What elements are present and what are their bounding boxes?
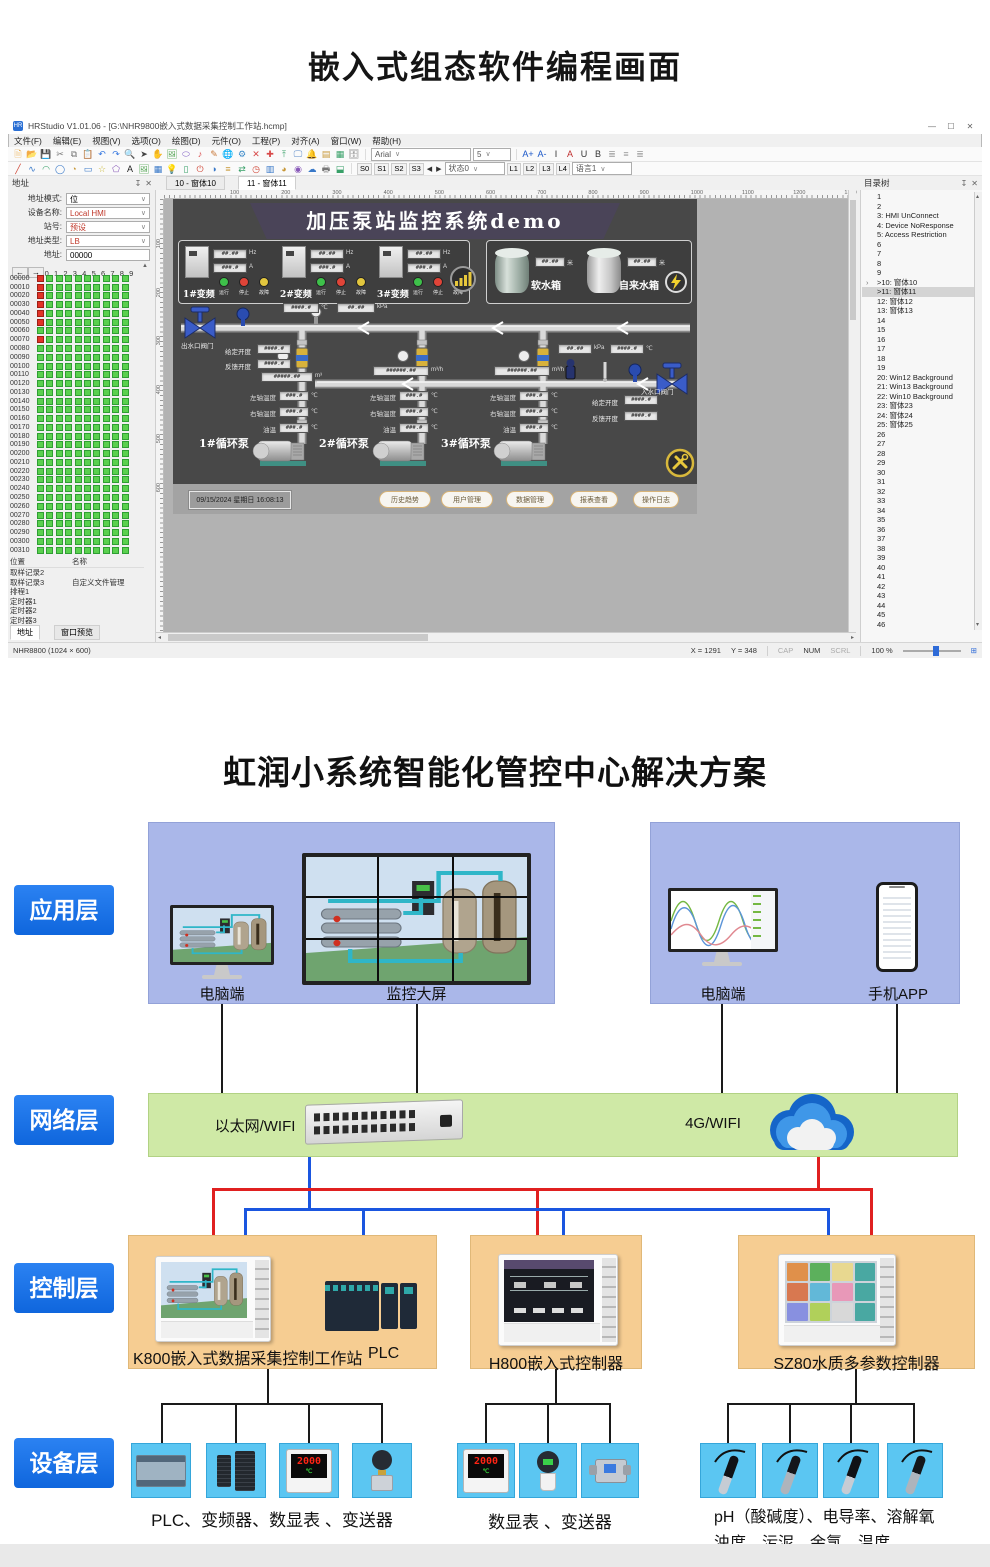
- bit-cell[interactable]: [65, 503, 72, 510]
- bit-cell[interactable]: [46, 354, 53, 361]
- picture-icon[interactable]: 🖼: [138, 163, 150, 175]
- image-icon[interactable]: 🖼: [166, 148, 178, 160]
- bit-cell[interactable]: [93, 520, 100, 527]
- bit-cell[interactable]: [112, 468, 119, 475]
- temp-display-top[interactable]: ####.#: [283, 303, 319, 313]
- bit-cell[interactable]: [122, 441, 129, 448]
- bit-cell[interactable]: [65, 310, 72, 317]
- bit-cell[interactable]: [56, 468, 63, 475]
- bit-cell[interactable]: [112, 354, 119, 361]
- printer-icon[interactable]: 🖶: [320, 163, 332, 175]
- bit-cell[interactable]: [56, 389, 63, 396]
- hmi-design-canvas[interactable]: 加压泵站监控系统demo 1#变频##.##Hz###.#A运行停止故障2#变频…: [173, 199, 697, 484]
- tree-item[interactable]: 26: [862, 430, 974, 440]
- bit-cell[interactable]: [56, 319, 63, 326]
- bit-cell[interactable]: [122, 503, 129, 510]
- bit-cell[interactable]: [37, 441, 44, 448]
- bit-cell[interactable]: [56, 503, 63, 510]
- bit-cell[interactable]: [37, 450, 44, 457]
- bit-cell[interactable]: [112, 520, 119, 527]
- bit-cell[interactable]: [65, 485, 72, 492]
- bit-cell[interactable]: [112, 415, 119, 422]
- state-button-S2[interactable]: S2: [391, 163, 406, 175]
- cut-icon[interactable]: ✂: [54, 148, 66, 160]
- align-center-icon[interactable]: ≡: [620, 148, 632, 160]
- bit-cell[interactable]: [75, 494, 82, 501]
- bit-cell[interactable]: [46, 319, 53, 326]
- bit-cell[interactable]: [112, 345, 119, 352]
- bit-cell[interactable]: [103, 433, 110, 440]
- bit-cell[interactable]: [75, 371, 82, 378]
- value-display[interactable]: ###.#: [399, 391, 429, 401]
- bit-cell[interactable]: [93, 441, 100, 448]
- bit-cell[interactable]: [122, 494, 129, 501]
- tree-item[interactable]: 23: 窗体23: [862, 401, 974, 411]
- menu-item-6[interactable]: 元件(O): [212, 135, 241, 147]
- bit-cell[interactable]: [75, 547, 82, 554]
- bit-cell[interactable]: [112, 284, 119, 291]
- bit-cell[interactable]: [84, 441, 91, 448]
- bit-cell[interactable]: [46, 292, 53, 299]
- tree-item[interactable]: 32: [862, 487, 974, 497]
- bit-cell[interactable]: [75, 345, 82, 352]
- tree-item[interactable]: 27: [862, 439, 974, 449]
- bit-cell[interactable]: [75, 292, 82, 299]
- close-icon[interactable]: ✕: [145, 179, 152, 188]
- bit-cell[interactable]: [103, 371, 110, 378]
- bit-cell[interactable]: [103, 292, 110, 299]
- bit-cell[interactable]: [37, 529, 44, 536]
- bit-cell[interactable]: [93, 398, 100, 405]
- paste-icon[interactable]: 📋: [82, 148, 94, 160]
- tab-window11[interactable]: 11 - 窗体11: [238, 176, 296, 190]
- component-icon[interactable]: ⬓: [334, 163, 346, 175]
- inlet-set-display[interactable]: ####.#: [624, 395, 658, 405]
- outlet-set-display[interactable]: ####.#: [257, 344, 291, 354]
- bold-button[interactable]: B: [592, 148, 604, 160]
- tree-item[interactable]: 30: [862, 468, 974, 478]
- bit-cell[interactable]: [46, 363, 53, 370]
- bit-cell[interactable]: [46, 476, 53, 483]
- bit-cell[interactable]: [103, 398, 110, 405]
- state-next-icon[interactable]: ▶: [435, 165, 442, 173]
- bit-cell[interactable]: [84, 380, 91, 387]
- bit-cell[interactable]: [37, 468, 44, 475]
- canvas-hscrollbar[interactable]: ◂▸: [156, 632, 856, 642]
- tree-item[interactable]: 36: [862, 525, 974, 535]
- bit-cell[interactable]: [112, 301, 119, 308]
- bit-cell[interactable]: [103, 380, 110, 387]
- bit-cell[interactable]: [37, 512, 44, 519]
- bit-cell[interactable]: [93, 494, 100, 501]
- tree-item[interactable]: 15: [862, 325, 974, 335]
- state-button-S0[interactable]: S0: [357, 163, 372, 175]
- plus-icon[interactable]: ✚: [264, 148, 276, 160]
- bit-cell[interactable]: [65, 459, 72, 466]
- lang-button-L3[interactable]: L3: [539, 163, 553, 175]
- menu-item-2[interactable]: 编辑(E): [53, 135, 81, 147]
- bit-cell[interactable]: [122, 284, 129, 291]
- bit-cell[interactable]: [122, 415, 129, 422]
- bit-cell[interactable]: [84, 301, 91, 308]
- bit-cell[interactable]: [122, 529, 129, 536]
- bit-cell[interactable]: [56, 371, 63, 378]
- bit-cell[interactable]: [65, 398, 72, 405]
- bit-cell[interactable]: [56, 398, 63, 405]
- italic-button[interactable]: I: [550, 148, 562, 160]
- value-display[interactable]: ###.#: [279, 391, 309, 401]
- bit-cell[interactable]: [56, 354, 63, 361]
- bit-cell[interactable]: [93, 319, 100, 326]
- bit-cell[interactable]: [75, 406, 82, 413]
- hmi-button-2[interactable]: 用户管理: [441, 491, 493, 508]
- open-folder-icon[interactable]: 📂: [26, 148, 38, 160]
- bit-cell[interactable]: [56, 494, 63, 501]
- lang-button-L4[interactable]: L4: [556, 163, 570, 175]
- bit-cell[interactable]: [37, 485, 44, 492]
- bit-cell[interactable]: [84, 538, 91, 545]
- bit-cell[interactable]: [37, 538, 44, 545]
- bit-cell[interactable]: [93, 292, 100, 299]
- bit-cell[interactable]: [93, 336, 100, 343]
- bit-cell[interactable]: [46, 459, 53, 466]
- bit-cell[interactable]: [103, 389, 110, 396]
- bit-cell[interactable]: [93, 380, 100, 387]
- bit-cell[interactable]: [103, 310, 110, 317]
- bit-cell[interactable]: [46, 529, 53, 536]
- bit-cell[interactable]: [103, 406, 110, 413]
- bit-cell[interactable]: [75, 284, 82, 291]
- bit-cell[interactable]: [46, 494, 53, 501]
- close-button[interactable]: ✕: [963, 122, 977, 131]
- tree-item[interactable]: 17: [862, 344, 974, 354]
- bit-cell[interactable]: [122, 468, 129, 475]
- bit-cell[interactable]: [112, 380, 119, 387]
- bit-cell[interactable]: [122, 459, 129, 466]
- bit-cell[interactable]: [65, 406, 72, 413]
- bit-cell[interactable]: [84, 310, 91, 317]
- bit-cell[interactable]: [75, 529, 82, 536]
- maximize-button[interactable]: ☐: [944, 122, 958, 131]
- bit-cell[interactable]: [56, 459, 63, 466]
- bit-cell[interactable]: [84, 485, 91, 492]
- menu-item-4[interactable]: 选项(O): [132, 135, 161, 147]
- bit-cell[interactable]: [84, 363, 91, 370]
- tree-item[interactable]: 4: Device NoResponse: [862, 221, 974, 231]
- bit-cell[interactable]: [56, 275, 63, 282]
- tree-item[interactable]: 6: [862, 240, 974, 250]
- bit-cell[interactable]: [84, 529, 91, 536]
- bit-cell[interactable]: [93, 512, 100, 519]
- tree-item[interactable]: 40: [862, 563, 974, 573]
- state-button-S3[interactable]: S3: [409, 163, 424, 175]
- bit-cell[interactable]: [103, 503, 110, 510]
- bit-cell[interactable]: [56, 520, 63, 527]
- bit-cell[interactable]: [65, 363, 72, 370]
- bit-cell[interactable]: [65, 354, 72, 361]
- bit-cell[interactable]: [37, 459, 44, 466]
- bit-cell[interactable]: [112, 485, 119, 492]
- bit-cell[interactable]: [75, 415, 82, 422]
- tree-item[interactable]: 24: 窗体24: [862, 411, 974, 421]
- cloud-icon[interactable]: ☁: [306, 163, 318, 175]
- flow-display-3[interactable]: ######.##: [494, 366, 550, 376]
- bit-cell[interactable]: [103, 319, 110, 326]
- bit-cell[interactable]: [93, 538, 100, 545]
- bit-cell[interactable]: [84, 284, 91, 291]
- tree-item[interactable]: 37: [862, 534, 974, 544]
- bit-cell[interactable]: [65, 547, 72, 554]
- bit-cell[interactable]: [93, 275, 100, 282]
- bit-cell[interactable]: [122, 424, 129, 431]
- bit-cell[interactable]: [93, 363, 100, 370]
- find-icon[interactable]: 🔍: [124, 148, 136, 160]
- bit-cell[interactable]: [56, 538, 63, 545]
- bit-cell[interactable]: [75, 354, 82, 361]
- bit-cell[interactable]: [122, 433, 129, 440]
- lang-button-L2[interactable]: L2: [523, 163, 537, 175]
- database-icon[interactable]: 🗄: [348, 148, 360, 160]
- bit-cell[interactable]: [75, 476, 82, 483]
- power-button[interactable]: [665, 271, 687, 293]
- bit-cell[interactable]: [93, 310, 100, 317]
- tree-item[interactable]: 22: Win10 Background: [862, 392, 974, 402]
- bit-cell[interactable]: [75, 450, 82, 457]
- bit-cell[interactable]: [103, 450, 110, 457]
- bit-cell[interactable]: [37, 503, 44, 510]
- inlet-fb-display[interactable]: ####.#: [624, 411, 658, 421]
- bit-cell[interactable]: [84, 520, 91, 527]
- bit-cell[interactable]: [37, 433, 44, 440]
- bit-cell[interactable]: [103, 415, 110, 422]
- bit-cell[interactable]: [37, 371, 44, 378]
- hmi-title-banner[interactable]: 加压泵站监控系统demo: [250, 203, 620, 239]
- font-size-select[interactable]: 5∨: [473, 148, 511, 161]
- tree-item[interactable]: 35: [862, 515, 974, 525]
- bit-cell[interactable]: [103, 275, 110, 282]
- pencil-icon[interactable]: ✎: [208, 148, 220, 160]
- bit-cell[interactable]: [103, 459, 110, 466]
- bit-cell[interactable]: [84, 371, 91, 378]
- bit-cell[interactable]: [46, 433, 53, 440]
- font-increase-button[interactable]: A+: [522, 148, 534, 160]
- bit-cell[interactable]: [112, 363, 119, 370]
- bit-cell[interactable]: [122, 450, 129, 457]
- bit-cell[interactable]: [103, 468, 110, 475]
- tree-item[interactable]: 42: [862, 582, 974, 592]
- bit-cell[interactable]: [93, 468, 100, 475]
- maintenance-button[interactable]: [667, 450, 693, 476]
- bit-cell[interactable]: [65, 292, 72, 299]
- bit-cell[interactable]: [103, 327, 110, 334]
- bit-cell[interactable]: [46, 468, 53, 475]
- bit-cell[interactable]: [56, 433, 63, 440]
- bit-cell[interactable]: [84, 327, 91, 334]
- bit-cell[interactable]: [75, 398, 82, 405]
- tree-item[interactable]: >11: 窗体11: [862, 287, 974, 297]
- bit-cell[interactable]: [122, 389, 129, 396]
- bit-cell[interactable]: [37, 547, 44, 554]
- bit-cell[interactable]: [56, 476, 63, 483]
- tree-item[interactable]: 3: HMI UnConnect: [862, 211, 974, 221]
- tree-item[interactable]: 8: [862, 259, 974, 269]
- bit-cell[interactable]: [75, 336, 82, 343]
- hmi-button-5[interactable]: 操作日志: [633, 491, 679, 508]
- canvas-vscrollbar[interactable]: [848, 190, 856, 632]
- bit-cell[interactable]: [56, 547, 63, 554]
- meter-icon[interactable]: ◑: [208, 163, 220, 175]
- bit-cell[interactable]: [103, 547, 110, 554]
- value-display[interactable]: ###.#: [279, 407, 309, 417]
- bit-cell[interactable]: [84, 547, 91, 554]
- state-button-S1[interactable]: S1: [374, 163, 389, 175]
- list-icon[interactable]: ≡: [222, 163, 234, 175]
- value-display[interactable]: ###.#: [399, 423, 429, 433]
- bit-cell[interactable]: [46, 415, 53, 422]
- bit-cell[interactable]: [122, 301, 129, 308]
- bit-cell[interactable]: [84, 503, 91, 510]
- bit-cell[interactable]: [65, 389, 72, 396]
- tab-address[interactable]: 地址: [10, 625, 40, 640]
- bit-cell[interactable]: [65, 494, 72, 501]
- bit-cell[interactable]: [112, 503, 119, 510]
- value-display[interactable]: ##.##: [213, 249, 247, 259]
- chart-button[interactable]: [450, 266, 476, 292]
- mode-select[interactable]: 位∨: [66, 193, 150, 205]
- value-display[interactable]: ###.#: [519, 407, 549, 417]
- tree-item[interactable]: ›>10: 窗体10: [862, 278, 974, 288]
- station-select[interactable]: 预设∨: [66, 221, 150, 233]
- copy-icon[interactable]: ⧉: [68, 148, 80, 160]
- bit-cell[interactable]: [112, 327, 119, 334]
- bit-cell[interactable]: [112, 371, 119, 378]
- bit-cell[interactable]: [56, 441, 63, 448]
- arc-icon[interactable]: ◠: [40, 163, 52, 175]
- upload-icon[interactable]: ⤒: [278, 148, 290, 160]
- bit-cell[interactable]: [65, 275, 72, 282]
- bit-cell[interactable]: [112, 529, 119, 536]
- tree-item[interactable]: 31: [862, 477, 974, 487]
- bit-cell[interactable]: [75, 424, 82, 431]
- bit-cell[interactable]: [75, 310, 82, 317]
- bit-cell[interactable]: [84, 450, 91, 457]
- value-display[interactable]: ###.#: [310, 263, 344, 273]
- bit-cell[interactable]: [93, 415, 100, 422]
- bit-cell[interactable]: [103, 424, 110, 431]
- bit-cell[interactable]: [46, 327, 53, 334]
- align-right-icon[interactable]: ≣: [634, 148, 646, 160]
- bit-cell[interactable]: [93, 476, 100, 483]
- bit-cell[interactable]: [65, 327, 72, 334]
- bit-cell[interactable]: [122, 485, 129, 492]
- bit-cell[interactable]: [65, 345, 72, 352]
- bit-cell[interactable]: [122, 310, 129, 317]
- bit-cell[interactable]: [93, 406, 100, 413]
- bit-cell[interactable]: [122, 354, 129, 361]
- menu-item-5[interactable]: 绘图(D): [172, 135, 201, 147]
- total-flow-display[interactable]: #####.##: [261, 372, 313, 382]
- menu-item-3[interactable]: 视图(V): [92, 135, 120, 147]
- bit-cell[interactable]: [65, 284, 72, 291]
- language-select[interactable]: 语言1∨: [572, 162, 632, 175]
- bit-cell[interactable]: [112, 538, 119, 545]
- bit-cell[interactable]: [112, 336, 119, 343]
- bit-cell[interactable]: [46, 485, 53, 492]
- bit-cell[interactable]: [84, 433, 91, 440]
- curve-icon[interactable]: ∿: [26, 163, 38, 175]
- bit-cell[interactable]: [37, 424, 44, 431]
- bit-cell[interactable]: [37, 406, 44, 413]
- bulb-icon[interactable]: 💡: [166, 163, 178, 175]
- bit-cell[interactable]: [93, 424, 100, 431]
- bit-cell[interactable]: [65, 450, 72, 457]
- tree-item[interactable]: 43: [862, 591, 974, 601]
- font-color-button[interactable]: A: [564, 148, 576, 160]
- lang-button-L1[interactable]: L1: [507, 163, 521, 175]
- value-display[interactable]: ###.#: [213, 263, 247, 273]
- bit-cell[interactable]: [46, 547, 53, 554]
- bit-cell[interactable]: [56, 292, 63, 299]
- ellipse-icon[interactable]: ⬭: [180, 148, 192, 160]
- bit-cell[interactable]: [93, 433, 100, 440]
- bit-cell[interactable]: [103, 476, 110, 483]
- bit-cell[interactable]: [75, 538, 82, 545]
- fit-view-icon[interactable]: ⊞: [971, 646, 977, 655]
- line-icon[interactable]: ╱: [12, 163, 24, 175]
- bit-cell[interactable]: [122, 336, 129, 343]
- bit-cell[interactable]: [84, 389, 91, 396]
- value-display[interactable]: ##.##: [310, 249, 344, 259]
- bit-cell[interactable]: [56, 485, 63, 492]
- bit-cell[interactable]: [122, 371, 129, 378]
- bit-cell[interactable]: [112, 292, 119, 299]
- table-row[interactable]: 定时器3: [10, 616, 144, 626]
- bit-cell[interactable]: [112, 310, 119, 317]
- flow-display-2[interactable]: ######.##: [373, 366, 429, 376]
- value-display[interactable]: ###.#: [519, 391, 549, 401]
- bit-cell[interactable]: [56, 336, 63, 343]
- tree-item[interactable]: 14: [862, 316, 974, 326]
- save-icon[interactable]: 💾: [40, 148, 52, 160]
- bit-cell[interactable]: [37, 380, 44, 387]
- bit-cell[interactable]: [37, 520, 44, 527]
- close-tool-icon[interactable]: ✕: [250, 148, 262, 160]
- gear-icon[interactable]: ⚙: [236, 148, 248, 160]
- bit-cell[interactable]: [37, 494, 44, 501]
- bit-cell[interactable]: [103, 494, 110, 501]
- bit-cell[interactable]: [56, 450, 63, 457]
- tree-item[interactable]: 44: [862, 601, 974, 611]
- grid-scroll-up-icon[interactable]: ▲: [142, 263, 148, 269]
- bit-cell[interactable]: [37, 389, 44, 396]
- bit-cell[interactable]: [65, 424, 72, 431]
- pin-icon[interactable]: ↧: [135, 179, 142, 188]
- bit-cell[interactable]: [93, 354, 100, 361]
- bit-cell[interactable]: [56, 327, 63, 334]
- bit-cell[interactable]: [84, 476, 91, 483]
- tree-item[interactable]: 29: [862, 458, 974, 468]
- bit-cell[interactable]: [75, 485, 82, 492]
- bit-cell[interactable]: [93, 284, 100, 291]
- bit-cell[interactable]: [122, 319, 129, 326]
- bit-cell[interactable]: [75, 363, 82, 370]
- bit-cell[interactable]: [112, 433, 119, 440]
- bit-cell[interactable]: [112, 512, 119, 519]
- bit-cell[interactable]: [56, 310, 63, 317]
- bit-cell[interactable]: [112, 547, 119, 554]
- monitor-icon[interactable]: 🖵: [292, 148, 304, 160]
- value-display[interactable]: ##.##: [407, 249, 441, 259]
